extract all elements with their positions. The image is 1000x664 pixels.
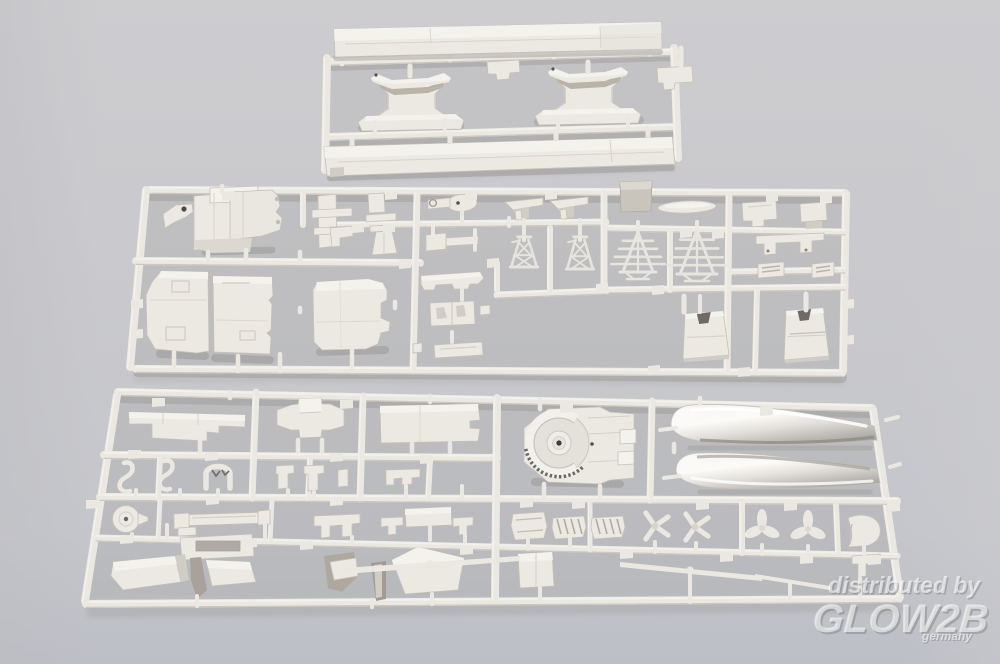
- svg-text:distributed by: distributed by: [828, 572, 981, 598]
- svg-text:germany: germany: [921, 629, 973, 643]
